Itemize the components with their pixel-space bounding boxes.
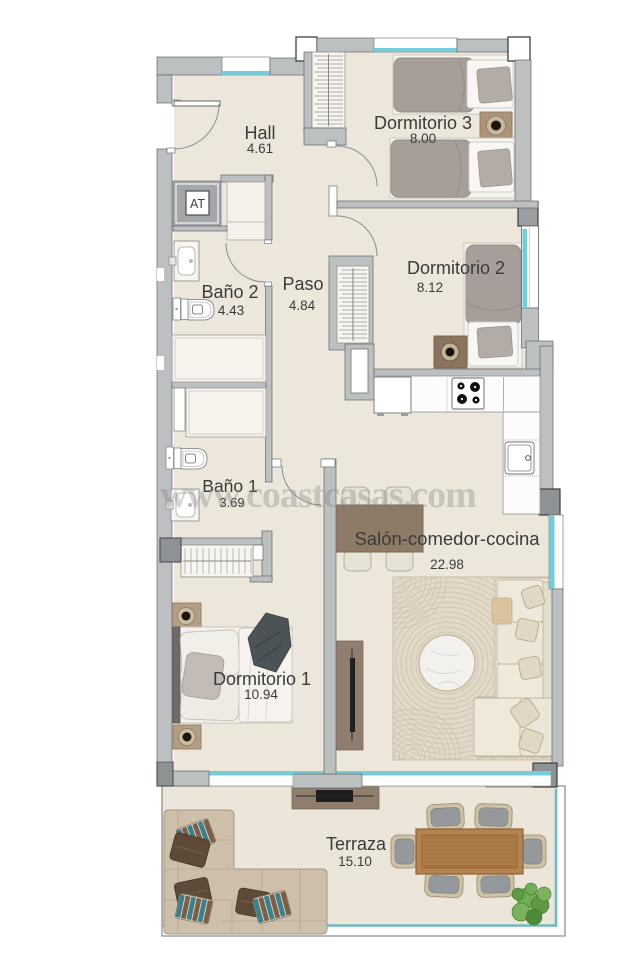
svg-text:AT: AT [190, 197, 205, 211]
svg-text:10.94: 10.94 [244, 687, 278, 702]
svg-text:Paso: Paso [282, 274, 323, 294]
svg-text:4.43: 4.43 [218, 303, 244, 318]
svg-text:Hall: Hall [244, 123, 275, 143]
svg-text:Dormitorio 2: Dormitorio 2 [407, 258, 505, 278]
svg-text:15.10: 15.10 [338, 854, 372, 869]
svg-text:4.61: 4.61 [247, 141, 273, 156]
svg-text:8.12: 8.12 [417, 280, 443, 295]
svg-text:Terraza: Terraza [326, 834, 387, 854]
svg-text:22.98: 22.98 [430, 557, 464, 572]
svg-text:4.84: 4.84 [289, 298, 316, 313]
svg-text:8.00: 8.00 [410, 131, 436, 146]
svg-text:Dormitorio 1: Dormitorio 1 [213, 669, 311, 689]
svg-text:Dormitorio 3: Dormitorio 3 [374, 113, 472, 133]
svg-text:Baño 2: Baño 2 [201, 282, 258, 302]
svg-text:www.coastcasas.com: www.coastcasas.com [160, 474, 476, 516]
svg-text:Salón-comedor-cocina: Salón-comedor-cocina [354, 528, 540, 549]
